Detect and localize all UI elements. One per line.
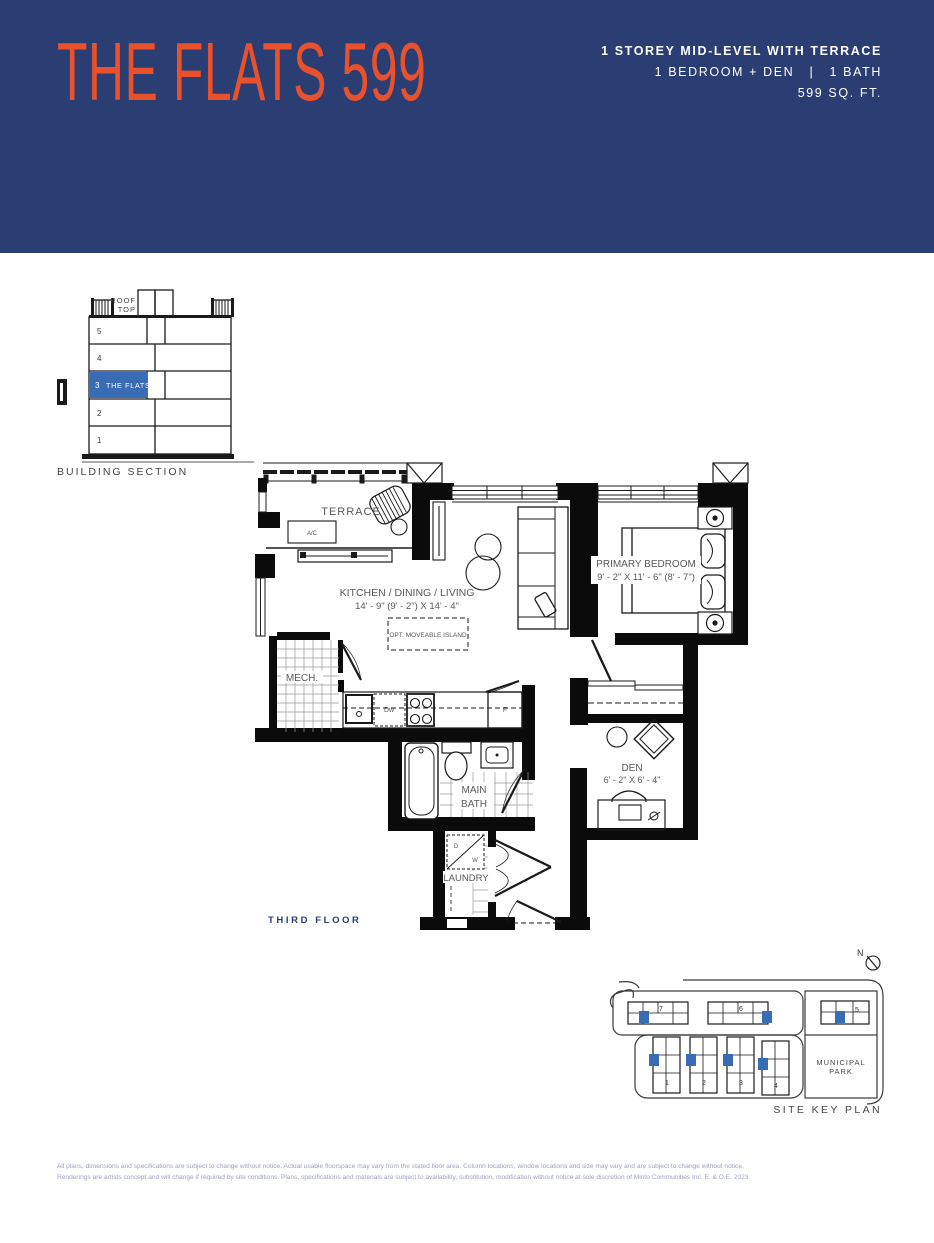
roof-top-label: ROOF [110,296,136,305]
disclaimer-line: All plans, dimensions and specifications… [57,1162,887,1173]
floor-number: 2 [97,409,102,418]
laundry-label: LAUNDRY [443,873,489,884]
island-label: OPT. MOVEABLE ISLAND [389,632,467,639]
disclaimer-line: Renderings are artists concept and will … [57,1173,887,1184]
fridge-label: F [503,707,507,714]
terrace-room: A/C TERRACE [266,483,413,562]
municipal-park-label: MUNICIPAL PARK [816,1058,865,1076]
sink-icon [346,695,372,723]
entry-door-icon [507,901,561,922]
primary-bedroom-room: PRIMARY BEDROOM 9' - 2" X 11' - 6" (8' -… [588,507,732,703]
bath-sink-icon [481,742,513,768]
svg-text:N: N [857,948,864,958]
roof-slab [89,315,231,318]
the-flats-label: THE FLATS [106,381,151,390]
svg-text:BATH: BATH [461,799,487,810]
disclaimer: All plans, dimensions and specifications… [57,1162,887,1183]
site-key-plan: N [605,938,934,1113]
dining-table-icon [466,534,501,590]
sliding-door-icon [433,502,445,560]
mech-label: MECH. [286,673,318,684]
page-title: THE FLATS 599 [57,30,426,113]
walls [255,478,748,930]
svg-text:6: 6 [739,1006,743,1013]
main-bath-room: MAIN BATH [405,742,533,819]
sofa-icon [518,507,568,629]
site-key-plan-title: SITE KEY PLAN [605,1104,882,1116]
svg-text:5: 5 [855,1007,859,1014]
den-chair-icon [634,719,674,759]
floor-number: 1 [97,436,102,445]
fridge-icon [486,681,522,728]
desk-icon [598,791,665,830]
dishwasher-label: Dw [384,707,395,714]
bath-door-icon [502,770,524,813]
toilet-icon [442,742,471,780]
floorplan-sheet: THE FLATS 599 1 STOREY MID-LEVEL WITH TE… [0,0,934,1243]
spec-storey: 1 STOREY MID-LEVEL WITH TERRACE [601,44,882,58]
washer-dryer-icon: D W [447,835,484,869]
patio-table-icon [391,519,407,535]
terrace-lower-railing-icon [298,550,392,562]
floor-title: THIRD FLOOR [268,915,362,926]
column-marker-icon [407,463,748,483]
svg-text:3: 3 [739,1080,743,1087]
svg-text:2: 2 [702,1080,706,1087]
bath-label: MAIN [462,785,487,796]
moveable-island: OPT. MOVEABLE ISLAND [388,618,468,650]
stove-icon [407,694,434,726]
kitchen-counter: Dw F [343,681,522,728]
floor-number-highlight: 3 [95,381,100,390]
floor-number: 4 [97,354,102,363]
svg-text:PARK: PARK [829,1067,853,1076]
mech-room: MECH. [277,640,361,732]
kitchen-label: KITCHEN / DINING / LIVING [340,587,475,599]
north-arrow-icon: N [857,948,880,970]
roof-box [138,290,155,317]
closet-icon [588,681,683,703]
building-section-title: BUILDING SECTION [57,466,188,478]
floor-plan: A/C TERRACE KITCHEN / DINING [255,450,785,940]
spec-rooms: 1 BEDROOM + DEN | 1 BATH [601,65,882,79]
kitchen-dims: 14' - 9" (9' - 2") X 14' - 4" [355,601,459,612]
roof-box [155,290,173,317]
bedroom-label: PRIMARY BEDROOM [596,559,696,570]
svg-text:7: 7 [659,1006,663,1013]
svg-text:MUNICIPAL: MUNICIPAL [816,1058,865,1067]
bedroom-dims: 9' - 2" X 11' - 6" (8' - 7") [597,572,695,583]
ac-label: A/C [307,531,318,537]
unit-specs: 1 STOREY MID-LEVEL WITH TERRACE 1 BEDROO… [601,44,882,107]
dryer-label: D [454,844,459,850]
svg-text:1: 1 [665,1080,669,1087]
header-banner: THE FLATS 599 1 STOREY MID-LEVEL WITH TE… [0,0,934,253]
bedroom-door-icon [592,640,611,681]
den-room: DEN 6' - 2" X 6' - 4" [598,719,674,830]
floor-number: 5 [97,327,102,336]
building-section-diagram: 5 4 2 1 3 THE FLATS ROOF TOP [57,287,257,477]
mech-door-icon [341,642,361,680]
laundry-room: D W LAUNDRY [443,835,490,915]
entry-threshold [447,919,467,928]
washer-label: W [472,858,478,864]
bifold-doors-icon [495,840,551,896]
terrace-label: TERRACE [321,506,381,518]
nightstand-icon [698,507,732,634]
svg-text:TOP: TOP [118,305,136,314]
den-dims: 6' - 2" X 6' - 4" [604,775,661,785]
terrace-railing-icon [263,463,412,483]
spec-area: 599 SQ. FT. [601,86,882,100]
svg-text:4: 4 [774,1083,778,1090]
den-label: DEN [621,763,642,774]
side-table-icon [607,727,627,747]
bathtub-icon [405,743,438,819]
lounge-chair-icon [367,483,413,526]
ground-line [82,454,234,459]
